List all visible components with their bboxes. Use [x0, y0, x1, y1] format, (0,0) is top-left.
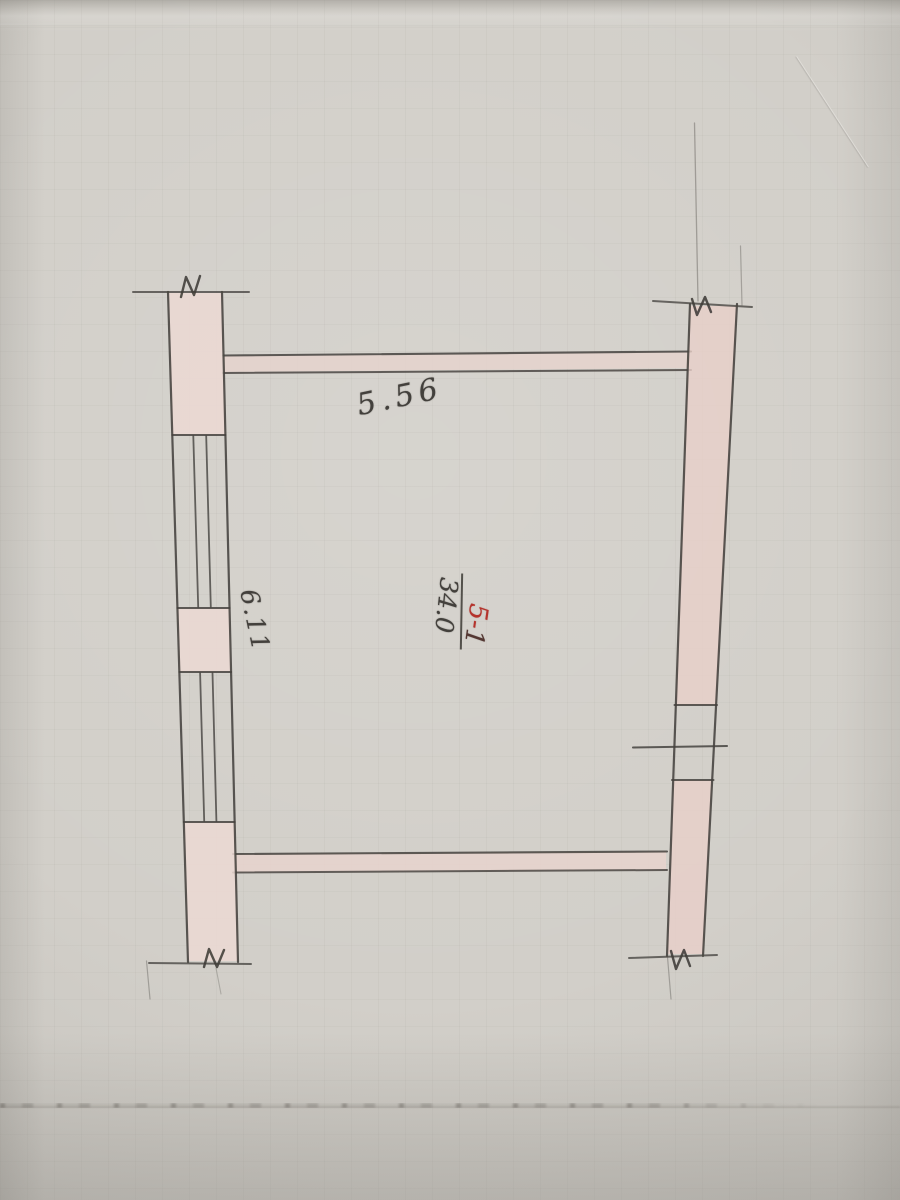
construction-line-top-right-long: [695, 123, 699, 301]
section-tick-line: [633, 746, 727, 748]
construction-line-bottom-left-tail: [216, 968, 221, 994]
room-label: 5-1 34.0: [429, 561, 493, 663]
construction-line-top-right-short: [741, 246, 743, 305]
paper-sheet: 5.56 6.11 5-1 34.0: [0, 0, 900, 1200]
paper-crease-horizontal: [0, 24, 900, 26]
wall-end-tick-bottom-left: [149, 963, 251, 964]
room-number-dark-part: 1: [458, 627, 490, 648]
room-number: 5-1: [460, 602, 492, 647]
left-wall-fill-upper: [168, 293, 225, 435]
window-glazing-line-4: [213, 673, 217, 821]
window-glazing-line-1: [193, 436, 198, 607]
left-wall-fill-middle: [177, 608, 231, 672]
room-area: 34.0: [430, 576, 462, 634]
left-wall-fill-lower: [184, 822, 238, 961]
construction-line-bottom-right: [668, 957, 672, 999]
bottom-smudge-line-faint: [0, 1106, 900, 1108]
construction-line-bottom-left: [147, 961, 151, 999]
bottom-wall: [233, 852, 667, 873]
left-wall: [168, 292, 238, 962]
window-glazing-line-3: [200, 673, 204, 821]
window-glazing-line-2: [206, 436, 211, 607]
